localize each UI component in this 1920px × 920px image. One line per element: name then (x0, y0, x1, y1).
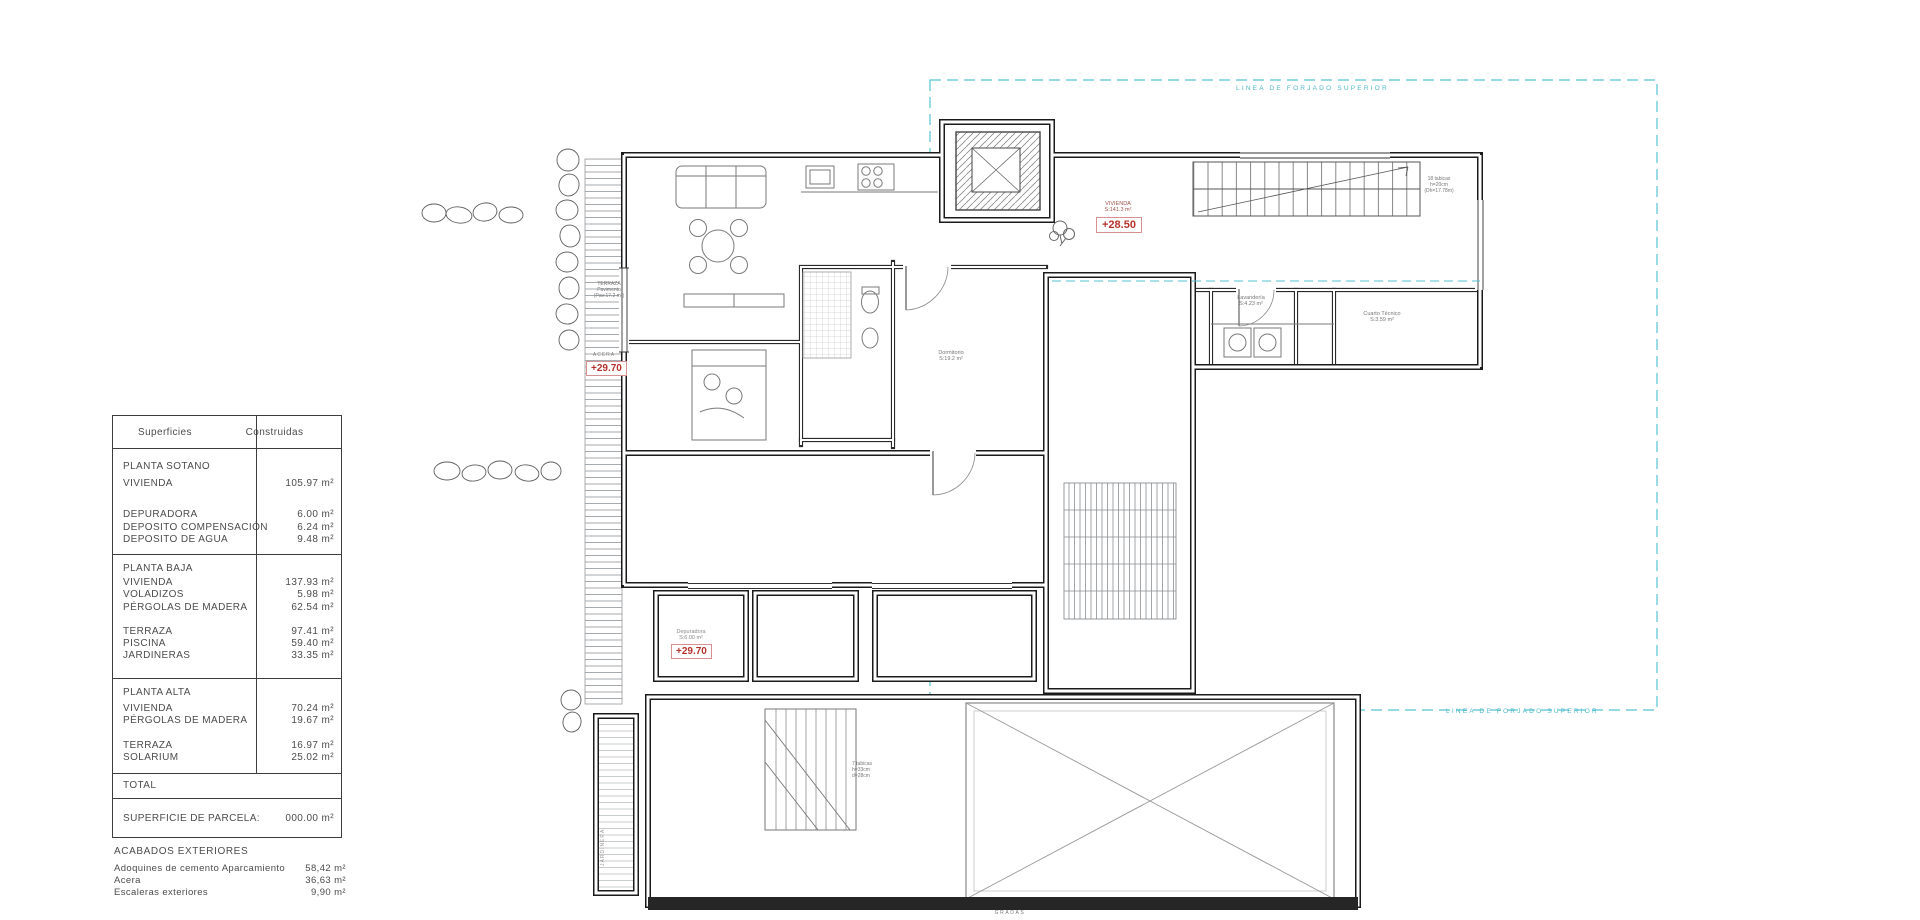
table-row: PLANTA BAJA (113, 563, 341, 575)
table-row: PLANTA ALTA (113, 687, 341, 699)
row-value: 9,90 m² (284, 887, 346, 899)
row-value: 9.48 m² (252, 534, 341, 546)
row-value: 137.93 m² (252, 577, 341, 589)
row-value (252, 687, 341, 699)
room-label-vivienda: VIVIENDAS:141.3 m² (1088, 201, 1148, 213)
table-row: TERRAZA16.97 m² (113, 740, 341, 752)
forjado-label-top: LINEA DE FORJADO SUPERIOR (1236, 85, 1389, 92)
acabados-row: Adoquines de cemento Aparcamiento58,42 m… (114, 863, 346, 875)
table-section: PLANTA SOTANOVIVIENDA105.97 m²DEPURADORA… (113, 449, 341, 555)
table-section: PLANTA BAJAVIVIENDA137.93 m²VOLADIZOS5.9… (113, 555, 341, 679)
jardinera-label: JARDINERA (600, 746, 606, 866)
table-row: VIVIENDA137.93 m² (113, 577, 341, 589)
room-label-acera: ACERA (583, 352, 625, 358)
row-label: Adoquines de cemento Aparcamiento (114, 863, 285, 875)
row-value: 19.67 m² (252, 715, 341, 727)
tower-stair-treads (1064, 483, 1176, 619)
room-label-depuradora: DepuradoraS:6.00 m² (662, 629, 720, 641)
acabados-title: ACABADOS EXTERIORES (114, 846, 346, 857)
table-row: PÉRGOLAS DE MADERA19.67 m² (113, 715, 341, 727)
row-label: VIVIENDA (113, 703, 252, 715)
row-value: 5.98 m² (252, 589, 341, 601)
acabados-rows: Adoquines de cemento Aparcamiento58,42 m… (114, 863, 346, 899)
row-label: PÉRGOLAS DE MADERA (113, 602, 252, 614)
table-row: DEPOSITO DE AGUA9.48 m² (113, 534, 341, 546)
row-value: 105.97 m² (252, 478, 341, 490)
row-label: VIVIENDA (113, 577, 252, 589)
table-row: VIVIENDA105.97 m² (113, 478, 341, 490)
table-row: VIVIENDA70.24 m² (113, 703, 341, 715)
header-superficies: Superficies (113, 427, 231, 438)
row-value: 000.00 m² (260, 813, 341, 825)
row-value: 59.40 m² (252, 638, 341, 650)
row-label: TOTAL (113, 780, 252, 792)
table-row: DEPOSITO COMPENSACIÓN6.24 m² (113, 522, 341, 534)
table-row: VOLADIZOS5.98 m² (113, 589, 341, 601)
row-label: Acera (114, 875, 284, 887)
row-value: 25.02 m² (252, 752, 341, 764)
row-label: PLANTA SOTANO (113, 461, 252, 473)
table-row: SOLARIUM25.02 m² (113, 752, 341, 764)
table-header: Superficies Construidas (113, 416, 341, 449)
row-label: Escaleras exteriores (114, 887, 284, 899)
row-value: 6.00 m² (252, 509, 341, 521)
row-label: JARDINERAS (113, 650, 252, 662)
acabados-exteriores: ACABADOS EXTERIORES Adoquines de cemento… (114, 846, 346, 899)
row-label: PÉRGOLAS DE MADERA (113, 715, 252, 727)
acabados-row: Acera36,63 m² (114, 875, 346, 887)
row-label: DEPOSITO COMPENSACIÓN (113, 522, 268, 534)
row-label: VIVIENDA (113, 478, 252, 490)
row-value (252, 780, 341, 792)
row-label: PLANTA BAJA (113, 563, 252, 575)
table-row: PLANTA SOTANO (113, 461, 341, 473)
table-row: DEPURADORA6.00 m² (113, 509, 341, 521)
table-row: PISCINA59.40 m² (113, 638, 341, 650)
gradas-label: GRADAS (975, 910, 1045, 916)
row-value (252, 563, 341, 575)
table-section: TOTAL (113, 774, 341, 799)
room-label-cuarto-tecnico: Cuarto TécnicoS:3.59 m² (1350, 311, 1414, 323)
table-section: PLANTA ALTAVIVIENDA70.24 m²PÉRGOLAS DE M… (113, 679, 341, 774)
forjado-label-bottom: LINEA DE FORJADO SUPERIOR (1446, 708, 1599, 715)
table-section: SUPERFICIE DE PARCELA:000.00 m² (113, 799, 341, 840)
table-column-divider (256, 416, 257, 773)
row-label: PISCINA (113, 638, 252, 650)
row-label: DEPURADORA (113, 509, 252, 521)
building-floor-masses (596, 122, 1480, 905)
level-marker-acera-29-70: +29.70 (586, 361, 627, 376)
surfaces-table: Superficies Construidas PLANTA SOTANOVIV… (112, 415, 342, 838)
acabados-row: Escaleras exteriores9,90 m² (114, 887, 346, 899)
upper-staircase (1193, 162, 1420, 216)
header-construidas: Construidas (231, 427, 318, 438)
stone-wall-hatching (422, 149, 583, 734)
room-label-dormitorio: DormitorioS:19.2 m² (920, 350, 982, 362)
surfaces-table-sections: PLANTA SOTANOVIVIENDA105.97 m²DEPURADORA… (113, 449, 341, 840)
table-row: TERRAZA97.41 m² (113, 626, 341, 638)
row-label: TERRAZA (113, 740, 252, 752)
stair-annotation-7-tabicas: 7 tabicash=33cmd=28cm (852, 762, 896, 779)
row-value: 6.24 m² (268, 522, 341, 534)
row-label: VOLADIZOS (113, 589, 252, 601)
room-label-lavanderia: LavanderíaS:4.23 m² (1222, 295, 1280, 307)
row-label: PLANTA ALTA (113, 687, 252, 699)
table-row: SUPERFICIE DE PARCELA:000.00 m² (113, 813, 341, 825)
table-row: PÉRGOLAS DE MADERA62.54 m² (113, 602, 341, 614)
row-value: 36,63 m² (284, 875, 346, 887)
architectural-drawing-page: { "surfaces_table": { "header_col1": "Su… (0, 0, 1920, 920)
row-label: TERRAZA (113, 626, 252, 638)
row-value (252, 461, 341, 473)
row-value: 16.97 m² (252, 740, 341, 752)
row-label: SOLARIUM (113, 752, 252, 764)
row-label: DEPOSITO DE AGUA (113, 534, 252, 546)
gradas-band (648, 897, 1358, 910)
stair-annotation-18-tabicas: 18 tabicash=20cm(Dh=17.78m) (1412, 177, 1466, 194)
row-value: 97.41 m² (252, 626, 341, 638)
level-marker-28-50: +28.50 (1096, 217, 1142, 233)
shower-icon (803, 272, 851, 358)
room-label-terraza: TERRAZAPavimento(Pav:17.2 m²) (578, 281, 640, 299)
row-label: SUPERFICIE DE PARCELA: (113, 813, 260, 825)
shaft-block-detail (956, 132, 1040, 210)
table-row: TOTAL (113, 780, 341, 792)
table-row: JARDINERAS33.35 m² (113, 650, 341, 662)
row-value: 33.35 m² (252, 650, 341, 662)
row-value: 70.24 m² (252, 703, 341, 715)
row-value: 58,42 m² (285, 863, 346, 875)
row-value: 62.54 m² (252, 602, 341, 614)
level-marker-dep-29-70: +29.70 (671, 644, 712, 659)
